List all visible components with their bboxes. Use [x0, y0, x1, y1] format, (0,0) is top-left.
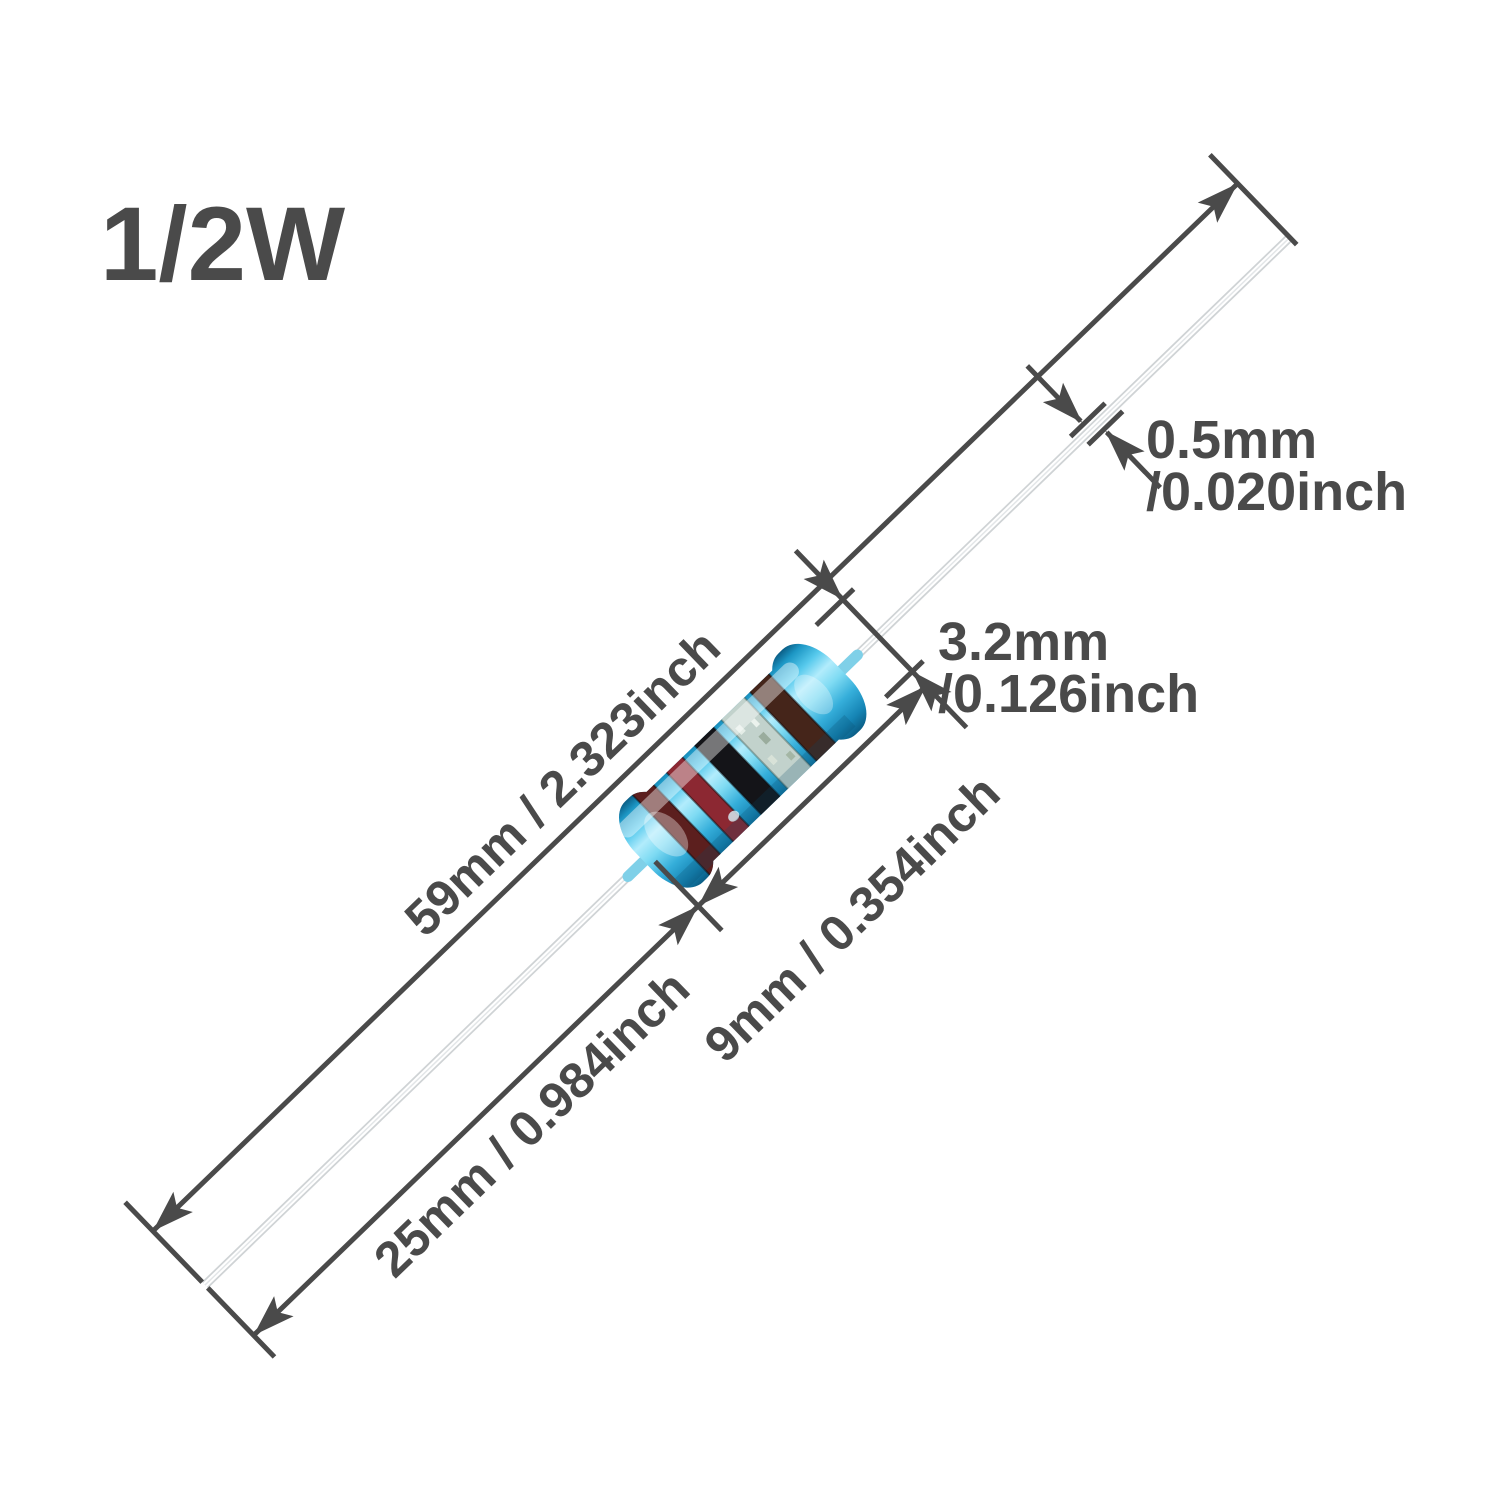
product-image-canvas: 59mm / 2.323inch 25mm / 0.984inch 9mm / … [0, 0, 1500, 1500]
body-diameter-label-mm: 3.2mm [938, 612, 1109, 672]
lead-diameter-label-inch: /0.020inch [1146, 462, 1407, 522]
resistor-dimension-diagram: 59mm / 2.323inch 25mm / 0.984inch 9mm / … [0, 0, 1500, 1500]
wattage-label: 1/2W [100, 186, 345, 303]
lead-diameter-callout-text: 0.5mm /0.020inch [1146, 410, 1407, 522]
lead-length-label: 25mm / 0.984inch [363, 960, 700, 1288]
resistor-assembly [166, 197, 1329, 1325]
body-diameter-callout-text: 3.2mm /0.126inch [938, 612, 1199, 724]
lead-diameter-label-mm: 0.5mm [1146, 410, 1317, 470]
body-diameter-label-inch: /0.126inch [938, 664, 1199, 724]
